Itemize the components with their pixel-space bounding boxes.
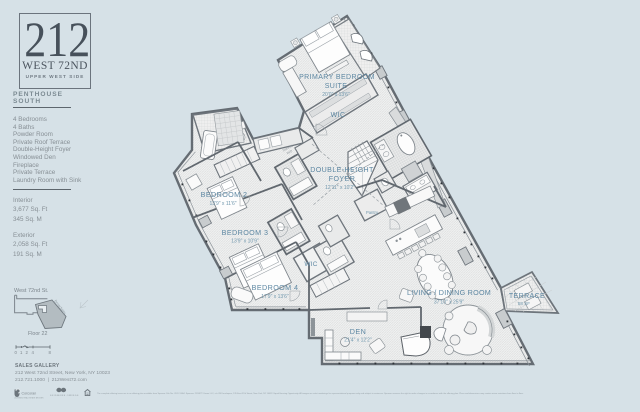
svg-text:PRIMARY BEDROOM: PRIMARY BEDROOM [299, 74, 375, 81]
svg-text:37'10" x 25'9": 37'10" x 25'9" [434, 300, 464, 306]
svg-text:20'0" x 13'6": 20'0" x 13'6" [322, 92, 350, 98]
svg-text:12'11" x 10'2": 12'11" x 10'2" [325, 185, 355, 191]
svg-text:BEDROOM 3: BEDROOM 3 [222, 228, 269, 237]
svg-text:SUITE: SUITE [325, 83, 348, 90]
svg-text:13'9" x 10'9": 13'9" x 10'9" [231, 239, 259, 245]
svg-text:FOYER: FOYER [329, 175, 355, 183]
svg-text:17'9" x 13'6": 17'9" x 13'6" [261, 294, 289, 300]
svg-text:58 SF: 58 SF [518, 301, 530, 306]
svg-text:The complete offering terms ar: The complete offering terms are in an of… [97, 392, 524, 395]
svg-text:DEN: DEN [350, 327, 366, 336]
svg-text:WIC: WIC [331, 112, 346, 119]
svg-text:Corcoran: Corcoran [22, 392, 37, 396]
svg-text:LICENSED REAL ESTATE BROKER: LICENSED REAL ESTATE BROKER [14, 397, 44, 400]
svg-text:LIVING / DINING ROOM: LIVING / DINING ROOM [407, 288, 491, 297]
svg-text:BEDROOM 2: BEDROOM 2 [201, 190, 248, 199]
svg-text:Pantry: Pantry [366, 210, 379, 215]
svg-text:SKIDMORE OWINGS: SKIDMORE OWINGS [50, 395, 79, 397]
svg-text:13'9" x 11'6": 13'9" x 11'6" [209, 201, 236, 207]
svg-text:TERRACE: TERRACE [509, 293, 545, 300]
svg-text:BEDROOM 4: BEDROOM 4 [252, 283, 299, 292]
svg-text:DOUBLE-HEIGHT: DOUBLE-HEIGHT [310, 166, 374, 174]
svg-text:WIC: WIC [304, 261, 317, 268]
svg-text:21'4" x 12'2": 21'4" x 12'2" [344, 338, 372, 344]
